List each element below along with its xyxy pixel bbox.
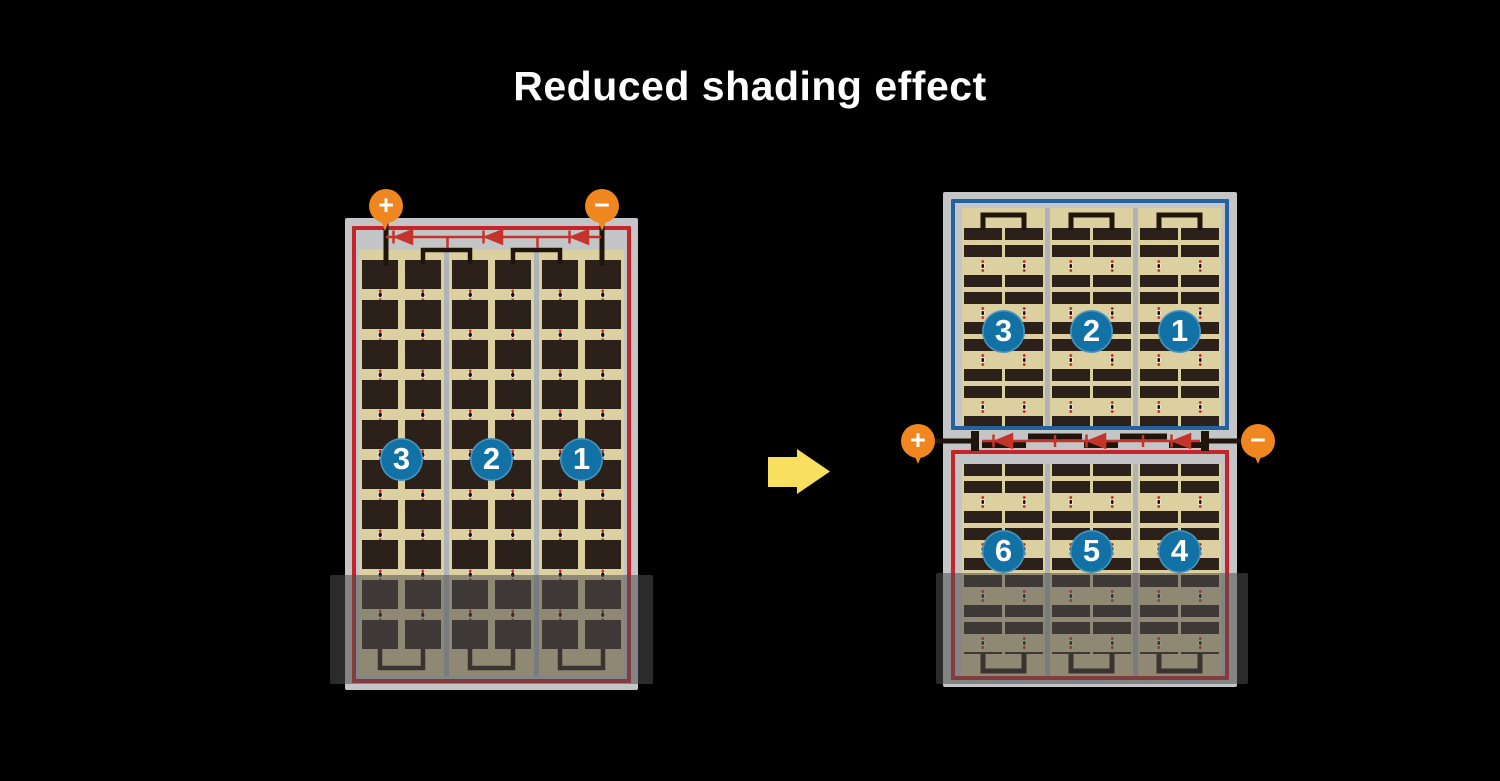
right-terminal-plus: + xyxy=(901,424,935,458)
right-bottom-section-badge-6: 6 xyxy=(982,530,1025,573)
right-bottom-section-badge-4: 4 xyxy=(1158,530,1201,573)
wiring-overlay xyxy=(0,0,1500,781)
left-terminal-plus: + xyxy=(369,189,403,223)
shading-overlay-left xyxy=(330,575,653,684)
right-top-section-badge-1: 1 xyxy=(1158,310,1201,353)
left-terminal-minus: − xyxy=(585,189,619,223)
right-arrow-icon xyxy=(768,449,830,494)
right-top-section-badge-3: 3 xyxy=(982,310,1025,353)
right-terminal-minus: − xyxy=(1241,424,1275,458)
left-section-badge-3: 3 xyxy=(380,438,423,481)
left-section-badge-2: 2 xyxy=(470,438,513,481)
right-top-section-badge-2: 2 xyxy=(1070,310,1113,353)
diagram-title: Reduced shading effect xyxy=(0,63,1500,110)
shading-overlay-right xyxy=(936,573,1248,684)
left-section-badge-1: 1 xyxy=(560,438,603,481)
right-bottom-section-badge-5: 5 xyxy=(1070,530,1113,573)
diagram-stage: Reduced shading effect xyxy=(0,0,1500,781)
